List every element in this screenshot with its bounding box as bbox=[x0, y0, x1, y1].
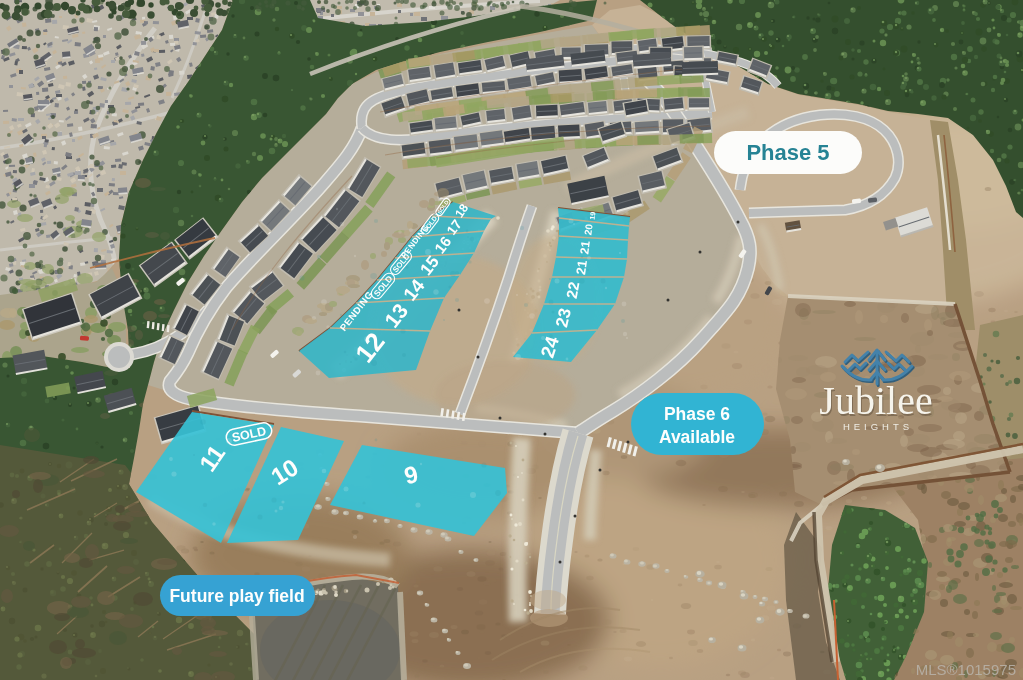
svg-text:MLS®1015975: MLS®1015975 bbox=[916, 661, 1016, 678]
